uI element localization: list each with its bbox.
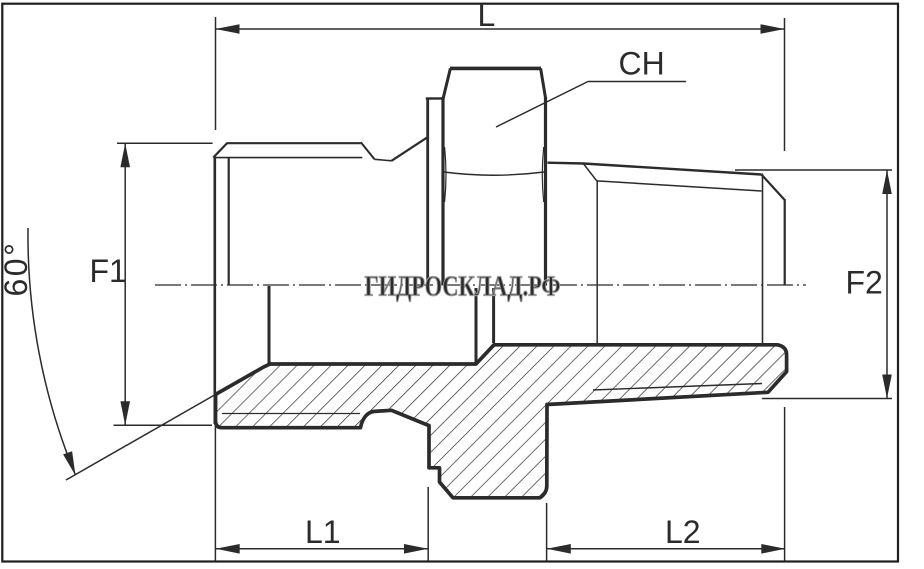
- svg-text:60°: 60°: [0, 241, 34, 297]
- svg-text:F2: F2: [846, 265, 883, 301]
- svg-text:CH: CH: [619, 46, 665, 82]
- svg-text:L1: L1: [305, 514, 341, 550]
- svg-text:L2: L2: [665, 514, 701, 550]
- svg-text:F1: F1: [90, 253, 127, 289]
- svg-text:L: L: [478, 0, 496, 33]
- svg-text:ГИДРОСКЛАД.РФ: ГИДРОСКЛАД.РФ: [365, 270, 561, 302]
